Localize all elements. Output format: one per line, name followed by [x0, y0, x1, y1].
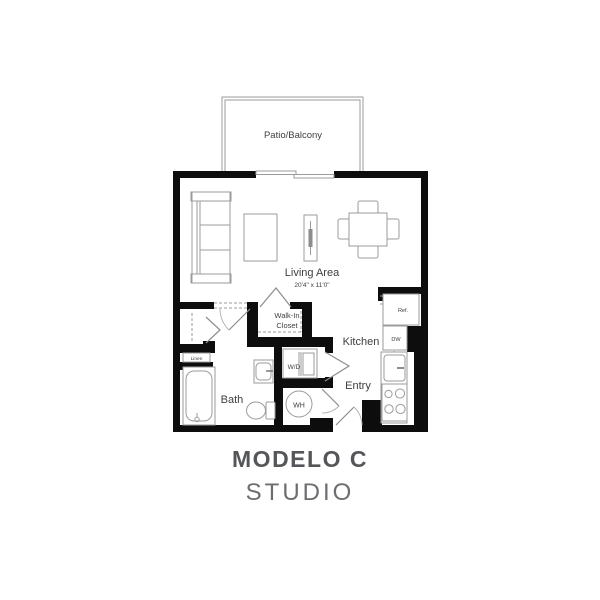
- dining-chair: [358, 245, 378, 258]
- model-name-title: MODELO C: [232, 446, 368, 472]
- vanity-sink: [254, 360, 273, 383]
- closet-bifold-door: [206, 317, 220, 343]
- linen-closet: Linen: [183, 353, 210, 362]
- bath-door: [220, 309, 250, 330]
- dining-table: [338, 201, 399, 258]
- dining-chair: [358, 201, 378, 214]
- walk-in-closet-label-line2: Closet: [276, 321, 298, 330]
- entry-label: Entry: [345, 380, 371, 392]
- living-area-label: Living Area: [285, 267, 340, 279]
- floor-plan-page: Patio/Balcony: [0, 0, 600, 600]
- washer-dryer-label: W/D: [288, 364, 301, 371]
- dishwasher: DW: [383, 326, 407, 350]
- linen-label: Linen: [191, 356, 203, 362]
- cased-opening: [214, 303, 249, 308]
- wh-door: [322, 389, 339, 413]
- dishwasher-label: DW: [391, 337, 401, 343]
- dining-chair: [386, 219, 399, 239]
- floor-plan-svg: Patio/Balcony: [0, 0, 600, 600]
- unit-type-subtitle: STUDIO: [246, 479, 355, 506]
- walk-in-closet-label-line1: Walk-In: [274, 311, 299, 320]
- bath-label: Bath: [221, 394, 244, 406]
- living-area-dimensions: 20'4" x 11'0": [294, 282, 330, 289]
- coffee-table: [244, 214, 277, 261]
- water-heater-label: WH: [293, 403, 305, 410]
- patio-label: Patio/Balcony: [264, 130, 322, 141]
- sofa: [191, 192, 231, 283]
- toilet: [247, 402, 276, 419]
- kitchen-label: Kitchen: [343, 336, 380, 348]
- wd-closet-doors: [325, 352, 349, 381]
- closet-double-door: [260, 288, 291, 307]
- sliding-door: [256, 171, 334, 178]
- refrigerator-label: Ref.: [398, 308, 409, 314]
- entry-door: [336, 407, 362, 425]
- water-heater: WH: [286, 391, 312, 417]
- washer-dryer: W/D: [283, 349, 317, 378]
- tv-console: [304, 215, 317, 261]
- refrigerator: Ref.: [380, 294, 419, 325]
- bathtub: [183, 367, 215, 425]
